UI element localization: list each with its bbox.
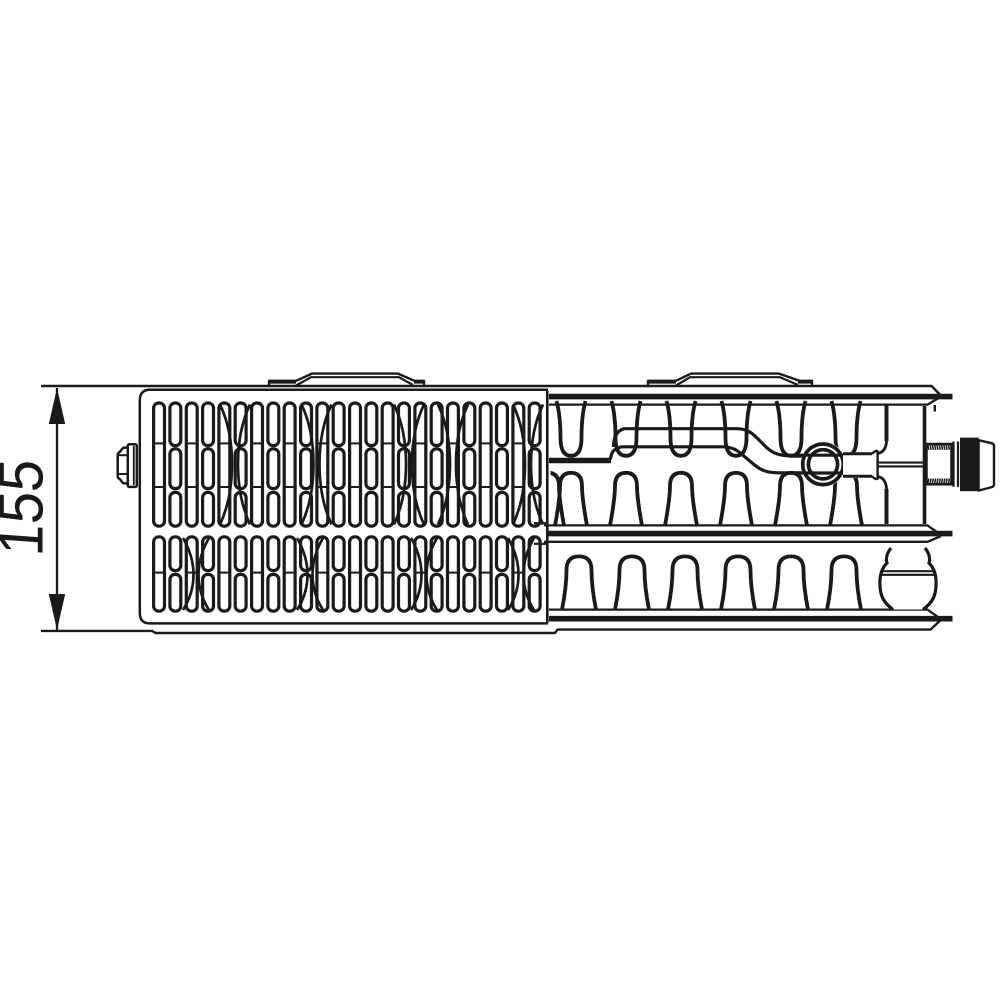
svg-text:155: 155 bbox=[0, 457, 56, 558]
